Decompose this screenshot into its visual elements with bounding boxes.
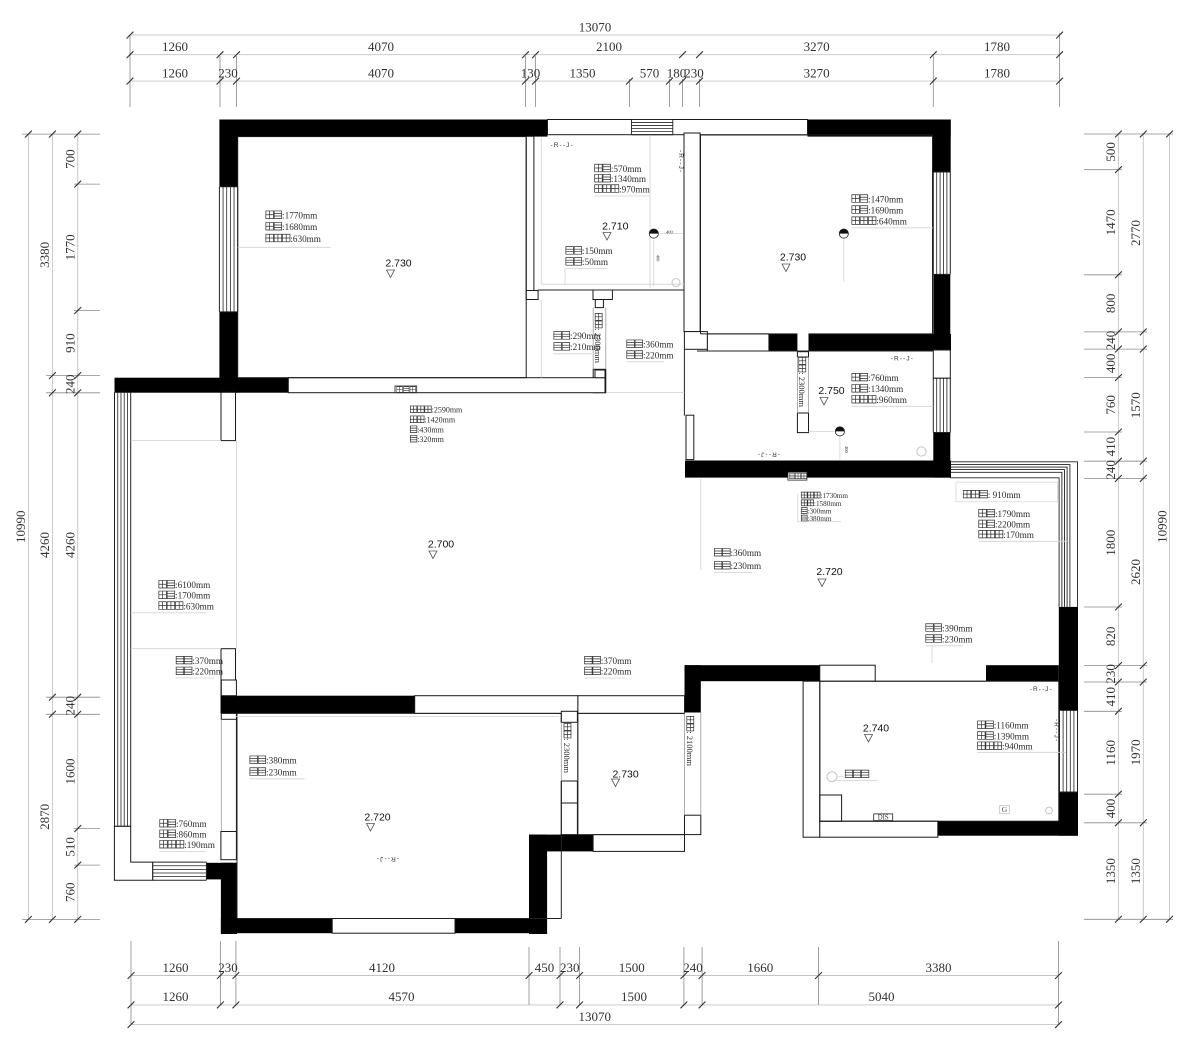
svg-text:3380: 3380 xyxy=(37,242,52,268)
svg-text:1350: 1350 xyxy=(570,66,596,81)
svg-text:400: 400 xyxy=(666,230,674,235)
svg-text::370mm: :370mm xyxy=(192,656,223,666)
svg-text::2590mm: :2590mm xyxy=(432,406,463,415)
svg-text:820: 820 xyxy=(1103,627,1118,647)
svg-text:10990: 10990 xyxy=(13,511,28,544)
svg-text:1780: 1780 xyxy=(984,39,1010,54)
svg-text::1690mm: :1690mm xyxy=(868,205,903,215)
svg-text::1790mm: :1790mm xyxy=(995,509,1030,519)
svg-text:1160: 1160 xyxy=(1103,740,1118,766)
svg-text::760mm: :760mm xyxy=(176,819,207,829)
svg-text:570: 570 xyxy=(640,66,660,81)
svg-text::640mm: :640mm xyxy=(876,216,907,226)
svg-text:4070: 4070 xyxy=(368,39,394,54)
svg-text::1700mm: :1700mm xyxy=(175,591,210,601)
svg-text:510: 510 xyxy=(63,837,78,857)
svg-text:2870: 2870 xyxy=(37,804,52,830)
svg-text::190mm: :190mm xyxy=(184,840,215,850)
svg-text::430mm: :430mm xyxy=(417,426,444,435)
svg-text::170mm: :170mm xyxy=(1003,530,1034,540)
svg-text::1420mm: :1420mm xyxy=(424,416,455,425)
svg-text::570mm: :570mm xyxy=(611,164,642,174)
svg-text:1970: 1970 xyxy=(1128,739,1143,765)
svg-text:4570: 4570 xyxy=(389,989,415,1004)
svg-text::320mm: :320mm xyxy=(417,435,444,444)
svg-text::960mm: :960mm xyxy=(876,395,907,405)
svg-text:760: 760 xyxy=(63,883,78,903)
svg-text:10990: 10990 xyxy=(1154,510,1169,543)
svg-text::1340mm: :1340mm xyxy=(868,384,903,394)
svg-text:1780: 1780 xyxy=(984,66,1010,81)
svg-text:2620: 2620 xyxy=(1128,559,1143,585)
svg-text:2.700: 2.700 xyxy=(428,539,454,551)
svg-text:13070: 13070 xyxy=(579,20,612,35)
svg-text::370mm: :370mm xyxy=(601,656,632,666)
svg-text::360mm: :360mm xyxy=(643,340,674,350)
svg-text::1160mm: :1160mm xyxy=(994,721,1029,731)
svg-text::860mm: :860mm xyxy=(176,830,207,840)
svg-text:130: 130 xyxy=(521,66,541,81)
svg-text:3270: 3270 xyxy=(804,39,830,54)
svg-text:-R--J-: -R--J- xyxy=(551,142,574,149)
svg-text:240: 240 xyxy=(1103,460,1118,480)
svg-text:500: 500 xyxy=(1103,142,1118,162)
svg-text:240: 240 xyxy=(1103,331,1118,351)
svg-text:G: G xyxy=(1002,805,1008,814)
svg-text:4260: 4260 xyxy=(63,532,78,558)
svg-text::150mm: :150mm xyxy=(582,246,613,256)
svg-text:1800: 1800 xyxy=(1103,530,1118,556)
svg-text:2770: 2770 xyxy=(1128,220,1143,246)
svg-text:2.730: 2.730 xyxy=(385,258,411,270)
svg-text:1660: 1660 xyxy=(747,960,773,975)
svg-text:13070: 13070 xyxy=(579,1009,612,1024)
svg-text:-R--J-: -R--J- xyxy=(891,356,914,363)
svg-text::970mm: :970mm xyxy=(619,184,650,194)
svg-text:1600: 1600 xyxy=(63,759,78,785)
svg-text:1260: 1260 xyxy=(163,960,189,975)
svg-text::630mm: :630mm xyxy=(290,234,321,244)
svg-text::380mm: :380mm xyxy=(266,756,297,766)
svg-text:-R--J-: -R--J- xyxy=(757,450,780,457)
svg-text:-R--J-: -R--J- xyxy=(1030,686,1053,693)
svg-text:760: 760 xyxy=(1103,395,1118,415)
svg-text::1730mm: :1730mm xyxy=(820,492,848,500)
svg-text:240: 240 xyxy=(683,960,703,975)
svg-text::630mm: :630mm xyxy=(183,601,214,611)
svg-text:1770: 1770 xyxy=(63,234,78,260)
svg-text:1570: 1570 xyxy=(1128,392,1143,418)
svg-text:4260: 4260 xyxy=(37,532,52,558)
svg-text:-R--J-: -R--J- xyxy=(376,855,399,862)
svg-text:2.720: 2.720 xyxy=(364,812,390,824)
svg-text:2.710: 2.710 xyxy=(602,221,628,233)
svg-text:1500: 1500 xyxy=(621,989,647,1004)
svg-text:: 2300mm: : 2300mm xyxy=(593,328,603,363)
svg-text::220mm: :220mm xyxy=(192,667,223,677)
svg-text:240: 240 xyxy=(63,696,78,716)
svg-text::6100mm: :6100mm xyxy=(175,580,210,590)
svg-text:2.730: 2.730 xyxy=(780,251,806,263)
svg-text:230: 230 xyxy=(560,960,580,975)
svg-text::220mm: :220mm xyxy=(643,350,674,360)
svg-text:1470: 1470 xyxy=(1103,209,1118,235)
svg-text::390mm: :390mm xyxy=(942,623,973,633)
svg-text:2100: 2100 xyxy=(596,39,622,54)
svg-text:2.740: 2.740 xyxy=(863,723,889,735)
svg-text:: 2300mm: : 2300mm xyxy=(797,372,807,407)
svg-text::940mm: :940mm xyxy=(1002,742,1033,752)
svg-text:400: 400 xyxy=(656,255,661,261)
svg-text:2.750: 2.750 xyxy=(818,385,844,397)
svg-text:700: 700 xyxy=(63,149,78,169)
svg-text::1680mm: :1680mm xyxy=(282,222,317,232)
svg-text:400: 400 xyxy=(1103,354,1118,374)
svg-text:2.730: 2.730 xyxy=(612,768,638,780)
svg-text:410: 410 xyxy=(1103,687,1118,707)
svg-text:230: 230 xyxy=(218,66,238,81)
svg-text:1260: 1260 xyxy=(162,39,188,54)
svg-text:5040: 5040 xyxy=(869,989,895,1004)
svg-text::2200mm: :2200mm xyxy=(995,520,1030,530)
svg-text:: 2300mm: : 2300mm xyxy=(562,738,572,773)
svg-text:DIS: DIS xyxy=(878,815,889,822)
svg-text::50mm: :50mm xyxy=(582,257,608,267)
svg-text:4070: 4070 xyxy=(368,66,394,81)
svg-text:410: 410 xyxy=(1103,437,1118,457)
svg-text::230mm: :230mm xyxy=(942,634,973,644)
svg-text:800: 800 xyxy=(1103,294,1118,314)
svg-text:400: 400 xyxy=(844,446,849,454)
svg-text::230mm: :230mm xyxy=(731,561,762,571)
svg-text::1770mm: :1770mm xyxy=(282,211,317,221)
svg-text::1340mm: :1340mm xyxy=(611,174,646,184)
svg-text:1350: 1350 xyxy=(1103,858,1118,884)
svg-text::1470mm: :1470mm xyxy=(868,194,903,204)
svg-text:1350: 1350 xyxy=(1128,858,1143,884)
svg-text:230: 230 xyxy=(684,66,704,81)
svg-text::1390mm: :1390mm xyxy=(994,731,1029,741)
svg-text:3270: 3270 xyxy=(804,66,830,81)
svg-text:: 2100mm: : 2100mm xyxy=(685,731,695,766)
svg-text:1260: 1260 xyxy=(162,66,188,81)
svg-text:450: 450 xyxy=(535,960,555,975)
svg-text:2.720: 2.720 xyxy=(816,566,842,578)
svg-text:230: 230 xyxy=(1103,664,1118,684)
svg-text:4120: 4120 xyxy=(369,960,395,975)
svg-text::360mm: :360mm xyxy=(731,548,762,558)
svg-text::220mm: :220mm xyxy=(601,667,632,677)
svg-text:-R--J-: -R--J- xyxy=(677,150,684,173)
svg-text:1500: 1500 xyxy=(619,960,645,975)
svg-text:230: 230 xyxy=(218,960,238,975)
svg-text:400: 400 xyxy=(1103,799,1118,819)
svg-text:-R--J-: -R--J- xyxy=(1053,719,1060,742)
svg-text:3380: 3380 xyxy=(926,960,952,975)
svg-text:1260: 1260 xyxy=(163,989,189,1004)
svg-text:910: 910 xyxy=(63,333,78,353)
svg-text::230mm: :230mm xyxy=(266,767,297,777)
svg-text:: 910mm: : 910mm xyxy=(988,490,1021,500)
svg-text::760mm: :760mm xyxy=(868,373,899,383)
svg-text:240: 240 xyxy=(63,374,78,394)
